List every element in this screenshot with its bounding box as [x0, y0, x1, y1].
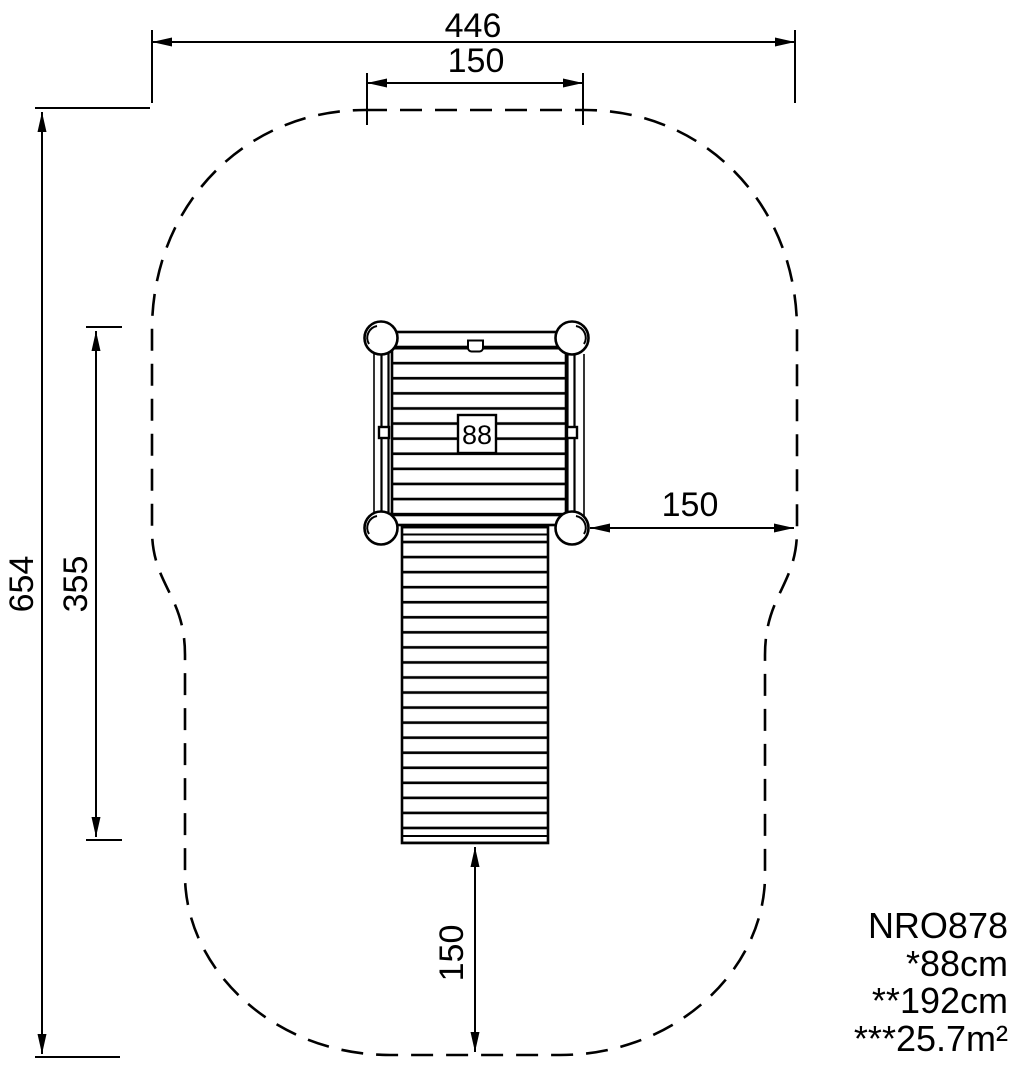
corner-post-bottom-left	[365, 512, 398, 545]
tower-platform: 88	[365, 322, 589, 545]
dim-446-label: 446	[445, 7, 502, 45]
dim-355-label: 355	[57, 556, 95, 613]
corner-post-top-right	[556, 322, 589, 355]
drawing-canvas: 88 446 150 654 355 150 15	[0, 0, 1024, 1069]
corner-post-top-left	[365, 322, 398, 355]
platform-height-label: 88	[462, 420, 492, 450]
dim-150bottom-label: 150	[433, 925, 471, 982]
tower-rail-bracket-right	[567, 427, 577, 438]
note-line-total-height: **192cm	[872, 980, 1008, 1021]
note-line-model: NRO878	[868, 905, 1008, 946]
notes-block: NRO878 *88cm **192cm ***25.7m²	[854, 905, 1008, 1059]
dim-150right-label: 150	[662, 486, 719, 524]
tower-top-latch	[468, 341, 483, 352]
note-line-fall-height: *88cm	[906, 943, 1008, 984]
dim-tower-width	[367, 73, 583, 125]
technical-drawing: 88 446 150 654 355 150 15	[0, 0, 1024, 1069]
corner-post-bottom-right	[556, 512, 589, 545]
tower-rail-bracket-left	[379, 427, 389, 438]
ramp	[402, 527, 548, 843]
ramp-rungs	[402, 527, 548, 843]
note-line-area: ***25.7m²	[854, 1018, 1008, 1059]
dim-654-label: 654	[3, 556, 41, 613]
dim-150top-label: 150	[448, 42, 505, 80]
